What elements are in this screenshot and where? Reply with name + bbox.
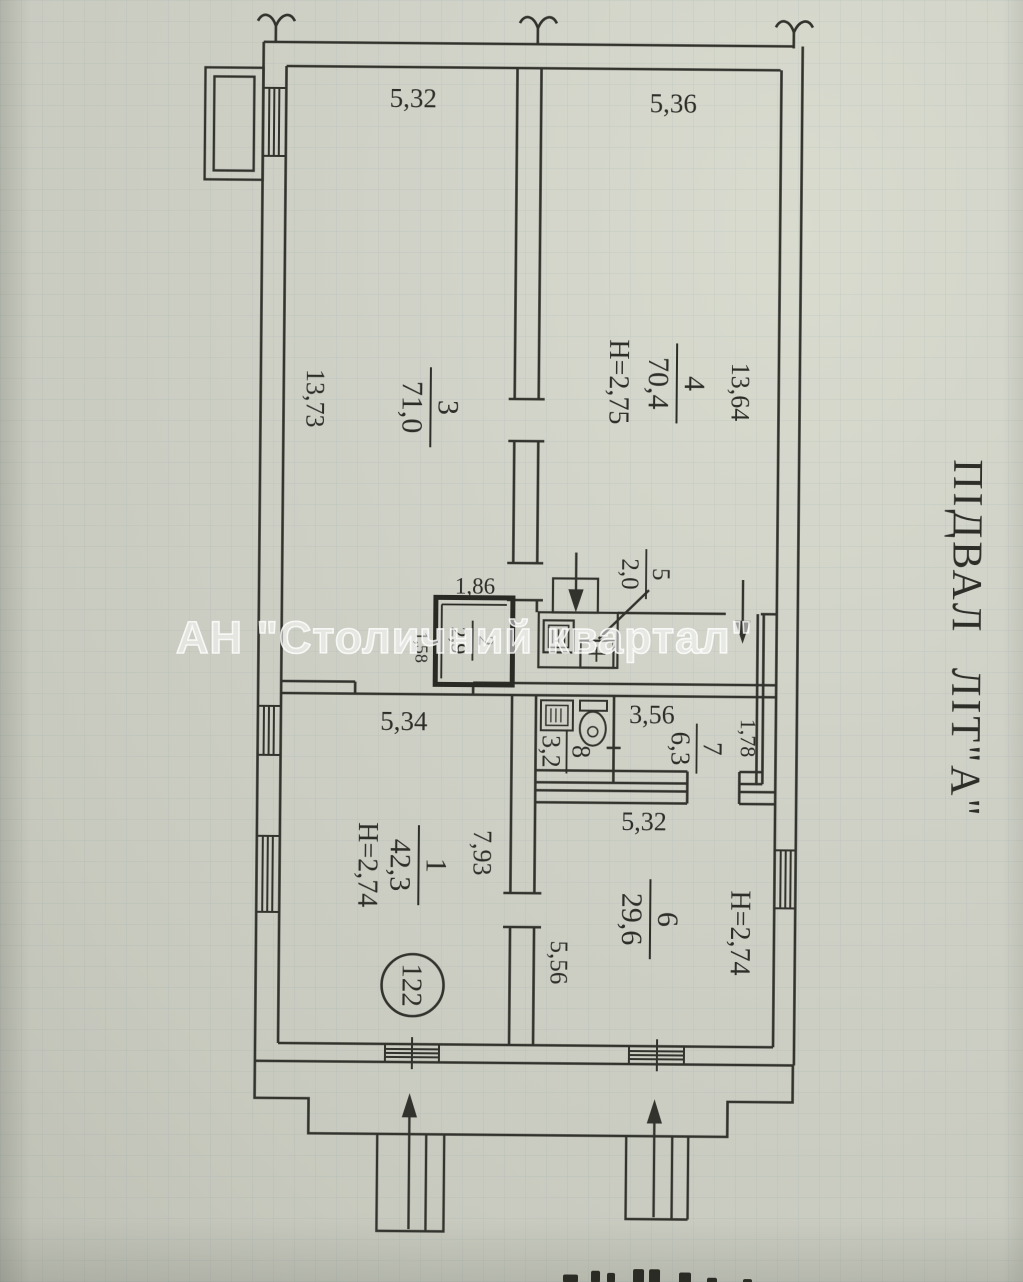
room7-area: 6,3 [665,731,695,765]
room1-number: 1 [420,858,453,873]
outer-walls [254,42,803,1138]
toilet-icon [580,701,607,746]
window-symbols [255,88,803,1073]
room4-label: 4 70,4 [641,343,711,424]
room3-depth-dim: 13,73 [300,369,330,428]
washbasin-icon [541,700,573,730]
room3-area: 71,0 [395,381,428,434]
room1-area: 42,3 [383,839,416,892]
scanned-floor-plan-photo: 122 3 71,0 5,32 13,73 4 70,4 H=2,75 5,36… [0,0,1023,1282]
room6-height: H=2,74 [724,890,756,975]
room1-label: 1 42,3 [383,825,453,906]
room7-label: 7 6,3 [665,723,727,774]
room6-label: 6 29,6 [615,879,685,960]
room5-label: 5 2,0 [616,549,674,600]
room4-height: H=2,75 [602,339,634,424]
room8-number: 8 [567,745,596,758]
room6-area: 29,6 [615,893,648,946]
room8-label: 8 3,2 [536,729,595,774]
room2-width-dim: 1,86 [455,574,495,599]
sheet-title-vertical: ПІДВАЛ ЛІТ"А" [941,459,990,819]
room1-width-dim: 5,34 [380,706,428,736]
room4-width-dim: 5,36 [650,88,698,118]
room3-label: 3 71,0 [395,367,465,448]
room5-area: 2,0 [616,558,643,589]
room1-height: H=2,74 [351,822,383,907]
room7-depth-dim: 1,78 [736,719,761,758]
room6-width-dim: 5,32 [621,807,667,836]
clipped-caption-fragment [563,1268,752,1282]
room7-number: 7 [698,742,728,756]
room4-area: 70,4 [642,357,675,410]
room5-number: 5 [647,568,674,581]
room6-depth-dim: 5,56 [545,940,572,984]
room1-depth-dim: 7,93 [468,830,497,876]
room3-number: 3 [432,400,465,415]
room6-number: 6 [651,912,684,927]
room4-depth-dim: 13,64 [725,363,755,422]
room4-number: 4 [678,376,711,391]
unit-number-badge: 122 [381,954,444,1017]
light-well [205,67,264,180]
room8-area: 3,2 [536,735,565,768]
unit-number: 122 [395,963,427,1007]
room3-width-dim: 5,32 [390,83,438,113]
room7-width-dim: 3,56 [629,700,675,729]
agency-watermark: АН "Столичний квартал" [176,612,856,664]
